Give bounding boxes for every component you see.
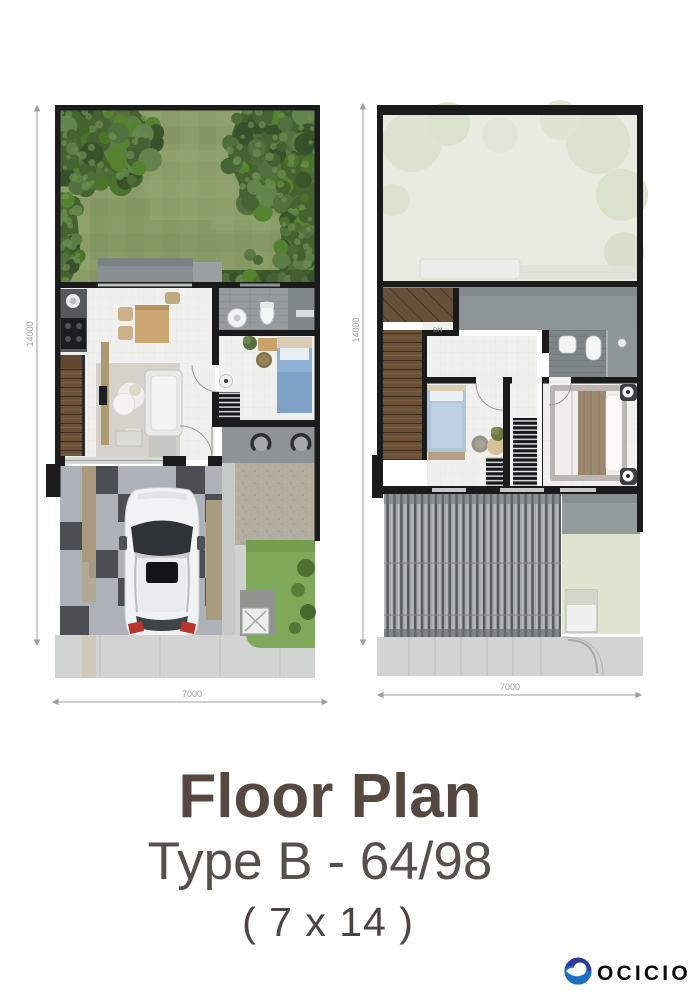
svg-text:14000: 14000 <box>351 317 361 342</box>
svg-text:7000: 7000 <box>500 682 520 692</box>
svg-text:7000: 7000 <box>182 689 202 699</box>
svg-text:( 7 x 14 ): ( 7 x 14 ) <box>242 899 414 945</box>
svg-text:OCICIO: OCICIO <box>597 962 691 985</box>
svg-text:14000: 14000 <box>25 321 35 346</box>
svg-text:Type B - 64/98: Type B - 64/98 <box>148 832 493 891</box>
svg-text:Floor Plan: Floor Plan <box>178 762 481 831</box>
svg-text:DN: DN <box>433 327 443 334</box>
